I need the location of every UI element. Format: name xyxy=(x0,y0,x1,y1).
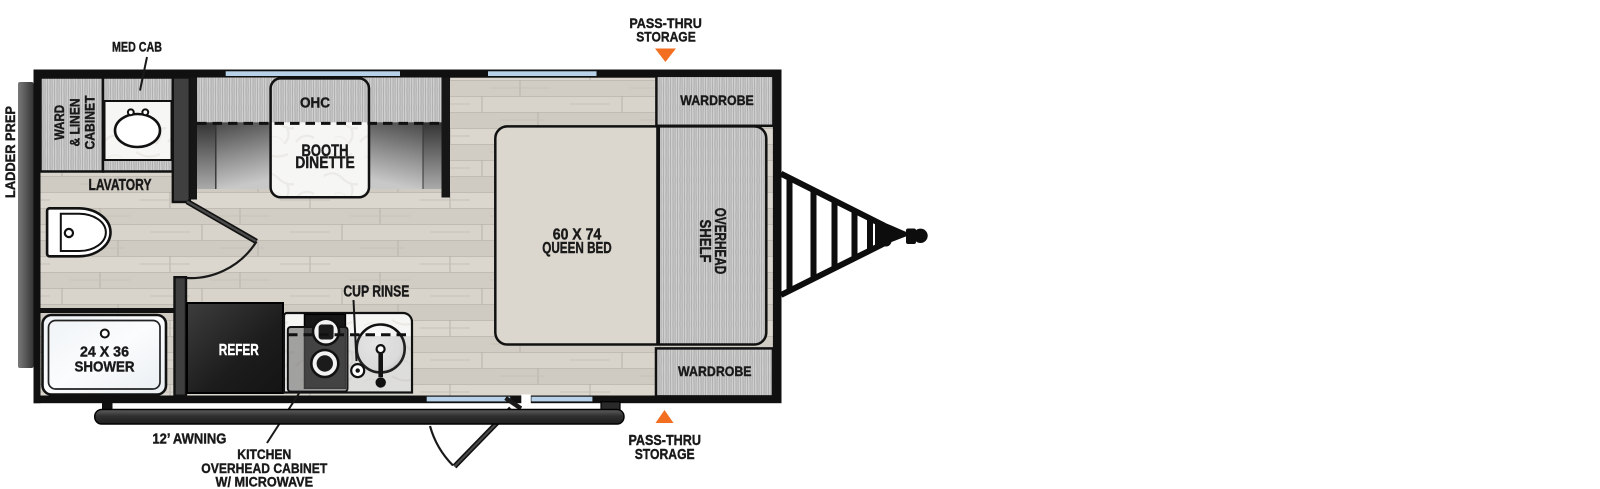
svg-text:QUEEN BED: QUEEN BED xyxy=(542,240,612,257)
svg-text:WARD: WARD xyxy=(52,105,67,140)
svg-text:DINETTE: DINETTE xyxy=(295,154,355,172)
svg-text:KITCHEN: KITCHEN xyxy=(237,447,291,462)
svg-text:W/ MICROWAVE: W/ MICROWAVE xyxy=(216,475,314,489)
svg-text:WARDROBE: WARDROBE xyxy=(680,92,754,108)
svg-text:REFER: REFER xyxy=(219,342,259,359)
svg-text:MED CAB: MED CAB xyxy=(112,39,162,55)
svg-text:LADDER PREP: LADDER PREP xyxy=(2,106,18,198)
svg-text:LAVATORY: LAVATORY xyxy=(89,177,152,194)
svg-text:12’ AWNING: 12’ AWNING xyxy=(152,431,226,447)
svg-text:& LINEN: & LINEN xyxy=(67,99,82,147)
svg-text:WARDROBE: WARDROBE xyxy=(678,363,752,379)
svg-text:SHELF: SHELF xyxy=(696,220,713,263)
svg-text:OHC: OHC xyxy=(300,96,330,112)
svg-text:CUP RINSE: CUP RINSE xyxy=(343,284,409,301)
svg-text:STORAGE: STORAGE xyxy=(636,29,696,45)
svg-text:STORAGE: STORAGE xyxy=(635,447,695,463)
svg-text:CABINET: CABINET xyxy=(83,95,98,150)
svg-text:SHOWER: SHOWER xyxy=(75,359,135,376)
